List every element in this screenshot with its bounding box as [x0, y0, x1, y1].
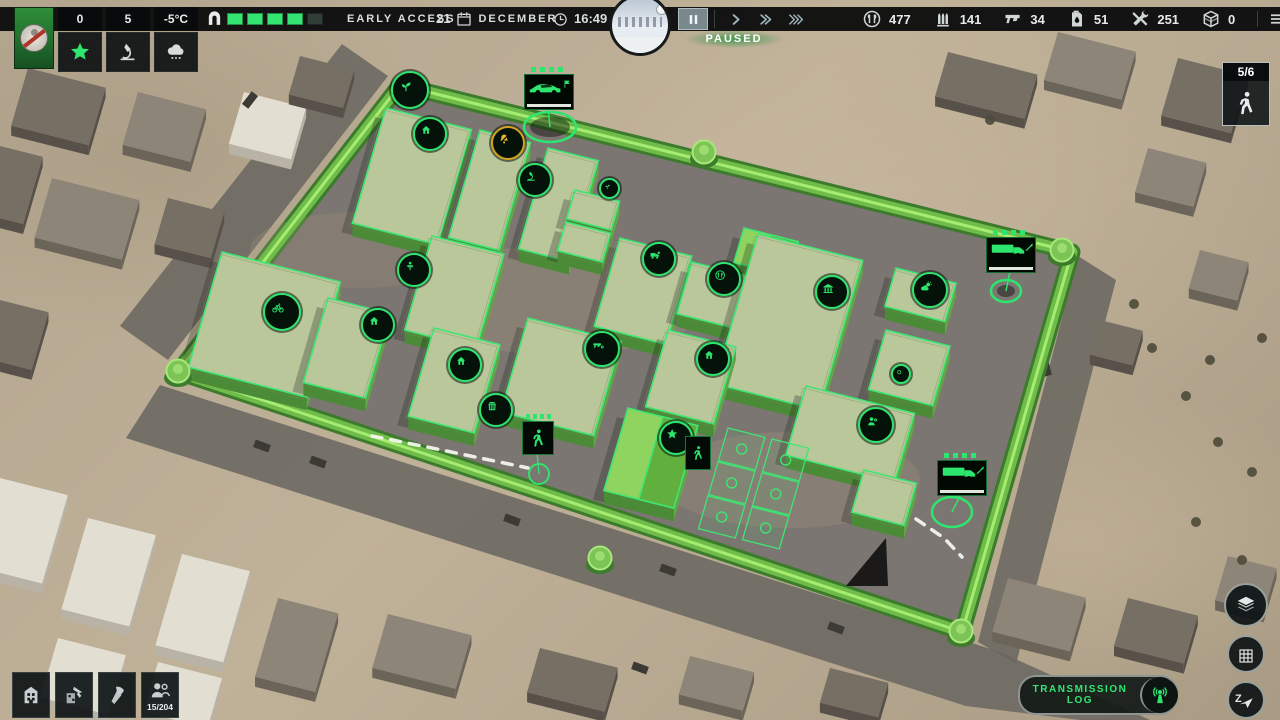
stat-reputation[interactable]: 0 [58, 7, 102, 72]
walking-person-icon [1223, 81, 1269, 125]
play-button[interactable] [721, 9, 749, 29]
layers-button[interactable] [1224, 583, 1268, 627]
house-icon [703, 349, 722, 368]
stats-group: 0 5 -5°C [58, 7, 198, 72]
resource-value: 141 [960, 12, 982, 27]
transmission-log-button[interactable]: TRANSMISSION LOG [1018, 675, 1178, 715]
small-plant-badge[interactable] [599, 178, 620, 199]
game-screen: 0 5 -5°C EARLY ACCESS 21 DECEMBER 16:49 … [0, 0, 1280, 720]
squads-panel[interactable]: 5/6 [1222, 62, 1270, 126]
workshop-badge[interactable] [263, 293, 301, 331]
shelter-badge[interactable] [361, 308, 395, 342]
stat-value: 0 [58, 7, 102, 31]
bike-icon [271, 301, 293, 323]
knife-icon [1024, 239, 1034, 249]
people-icon [149, 679, 171, 701]
gate-segment [227, 13, 243, 25]
date-month: DECEMBER [478, 7, 557, 31]
weather-station-badge[interactable] [912, 272, 948, 308]
microscope-icon [117, 41, 139, 63]
pause-button[interactable] [678, 8, 708, 30]
storage-badge[interactable] [479, 393, 513, 427]
canteen-badge[interactable] [707, 262, 741, 296]
school-badge[interactable] [397, 253, 431, 287]
hq-garrison-panel[interactable] [685, 436, 711, 470]
star-icon [69, 41, 91, 63]
truck-art [990, 241, 1026, 263]
garage-badge[interactable] [642, 242, 676, 276]
resource-fuel[interactable]: 51 [1067, 9, 1108, 29]
storage-icon [486, 400, 505, 419]
resource-ammo[interactable]: 141 [933, 9, 982, 29]
date-day: 21 [436, 7, 450, 31]
axe-icon [106, 684, 128, 706]
status-dots [531, 67, 563, 72]
resource-bar: 47714134512510 [862, 7, 1280, 31]
canteen-icon [714, 269, 733, 288]
faction-banner[interactable] [14, 7, 54, 69]
sun-position-dot [656, 4, 667, 15]
truck-art [941, 464, 977, 486]
status-dots [993, 230, 1025, 235]
fff-icon [788, 12, 803, 27]
layers-icon [1235, 594, 1257, 616]
grid-button[interactable] [1227, 635, 1265, 673]
grid-icon [1237, 645, 1255, 663]
resource-value: 51 [1094, 12, 1108, 27]
knife-icon [975, 462, 985, 472]
buildings-button[interactable] [12, 672, 50, 718]
demolish-button[interactable] [98, 672, 136, 718]
radio-tower-icon [1140, 677, 1178, 713]
alarm-muted-badge[interactable] [491, 126, 525, 160]
truck-marker[interactable] [937, 460, 987, 496]
squads-count: 5/6 [1223, 63, 1269, 81]
sun-cloud-icon [920, 280, 940, 300]
weapon-workshop-badge[interactable] [584, 331, 620, 367]
map-view-buttons: Z [1224, 583, 1268, 719]
laboratory-badge[interactable] [518, 163, 552, 197]
gate-segment [307, 13, 323, 25]
squad-marker[interactable] [522, 421, 554, 455]
house-icon [455, 355, 474, 374]
clock-icon [553, 12, 568, 27]
sprout-icon [604, 183, 615, 194]
house-icon [420, 124, 439, 143]
shelter-badge[interactable] [448, 348, 482, 382]
star-icon [666, 428, 685, 447]
skyline-art [618, 17, 662, 27]
pistol-gear-icon [592, 339, 612, 359]
bell-muted-icon [498, 133, 517, 152]
squad-dots [526, 414, 551, 419]
construction-button[interactable] [55, 672, 93, 718]
condition-bar [527, 104, 571, 107]
vehicle-gear-icon [649, 249, 668, 268]
gate-segment [247, 13, 263, 25]
resource-value: 0 [1228, 12, 1235, 27]
armed-walker-icon [528, 428, 548, 448]
map-overlay-layer [0, 0, 1280, 720]
compass-letter: Z [1235, 693, 1242, 705]
fastest-forward-button[interactable] [781, 9, 809, 29]
skyline-ground [612, 37, 668, 53]
food-icon [862, 9, 882, 29]
small-marker-badge[interactable] [891, 364, 911, 384]
resource-food[interactable]: 477 [862, 9, 911, 29]
house-icon [368, 315, 387, 334]
fast-forward-button[interactable] [751, 9, 779, 29]
weapons-icon [1003, 9, 1023, 29]
resource-tools[interactable]: 251 [1130, 9, 1179, 29]
bottom-left-toolbar: 15/204 [12, 672, 179, 718]
gate-integrity-indicator [206, 10, 323, 27]
garrison-person-icon [690, 445, 706, 461]
shelter-badge[interactable] [696, 342, 730, 376]
buildings-icon [20, 684, 42, 706]
resource-value: 251 [1157, 12, 1179, 27]
gate-segment [287, 13, 303, 25]
dot-icon [896, 369, 906, 379]
ammo-icon [933, 9, 953, 29]
stat-weather[interactable]: -5°C [154, 7, 198, 72]
stat-value: -5°C [154, 7, 198, 31]
menu-icon [1268, 10, 1280, 28]
microscope-icon [525, 170, 544, 189]
population-button[interactable]: 15/204 [141, 672, 179, 718]
wolf-no-entry-emblem [20, 24, 48, 52]
ff-icon [758, 12, 773, 27]
construct-icon [63, 684, 85, 706]
resource-materials[interactable]: 0 [1201, 9, 1235, 29]
paused-status: PAUSED [684, 30, 784, 48]
calendar-icon [456, 11, 472, 27]
truck-marker[interactable] [986, 237, 1036, 273]
play-icon [728, 12, 743, 27]
flag-icon [562, 76, 572, 86]
transmission-log-label: TRANSMISSION LOG [1020, 684, 1140, 706]
condition-bar [940, 490, 984, 493]
resource-weapons[interactable]: 34 [1003, 9, 1044, 29]
stat-value: 5 [106, 7, 150, 31]
tools-icon [1130, 9, 1150, 29]
status-dots [944, 453, 976, 458]
day-night-indicator[interactable] [609, 0, 671, 56]
speed-controls [678, 7, 809, 31]
sprout-icon [399, 79, 421, 101]
condition-bar [989, 267, 1033, 270]
gate-segment [267, 13, 283, 25]
resource-value: 34 [1030, 12, 1044, 27]
time-value: 16:49 [574, 7, 607, 31]
fuel-icon [1067, 9, 1087, 29]
person-gear-icon [866, 415, 886, 435]
population-count: 15/204 [147, 702, 173, 712]
resource-value: 477 [889, 12, 911, 27]
shelter-badge[interactable] [413, 117, 447, 151]
crew-badge[interactable] [858, 407, 894, 443]
lectern-icon [404, 260, 423, 279]
snow-cloud-icon [165, 41, 187, 63]
car-art [528, 78, 564, 100]
warehouse-icon [822, 282, 841, 301]
warehouse-badge[interactable] [815, 275, 849, 309]
pause-icon [686, 12, 701, 27]
time-display: 16:49 [553, 7, 607, 31]
gate-icon [206, 10, 223, 27]
stat-research[interactable]: 5 [106, 7, 150, 72]
materials-icon [1201, 9, 1221, 29]
car-marker[interactable] [524, 74, 574, 110]
menu-button[interactable] [1268, 8, 1280, 30]
watchtower-growing-badge[interactable] [391, 71, 429, 109]
compass-button[interactable]: Z [1227, 681, 1265, 719]
date-display: 21 DECEMBER [436, 7, 557, 31]
